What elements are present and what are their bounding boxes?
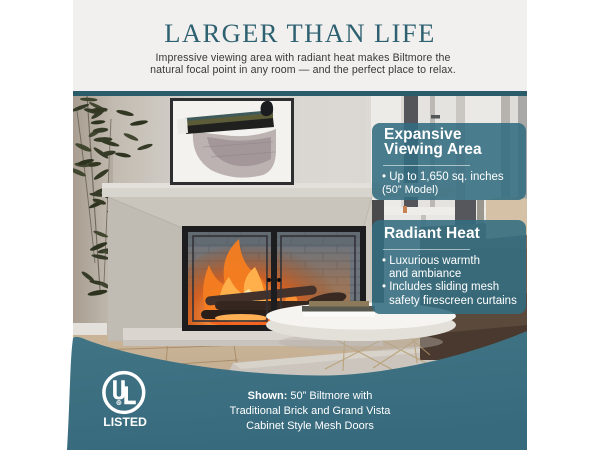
svg-text:R: R — [118, 400, 121, 405]
svg-text:LISTED: LISTED — [103, 415, 147, 428]
